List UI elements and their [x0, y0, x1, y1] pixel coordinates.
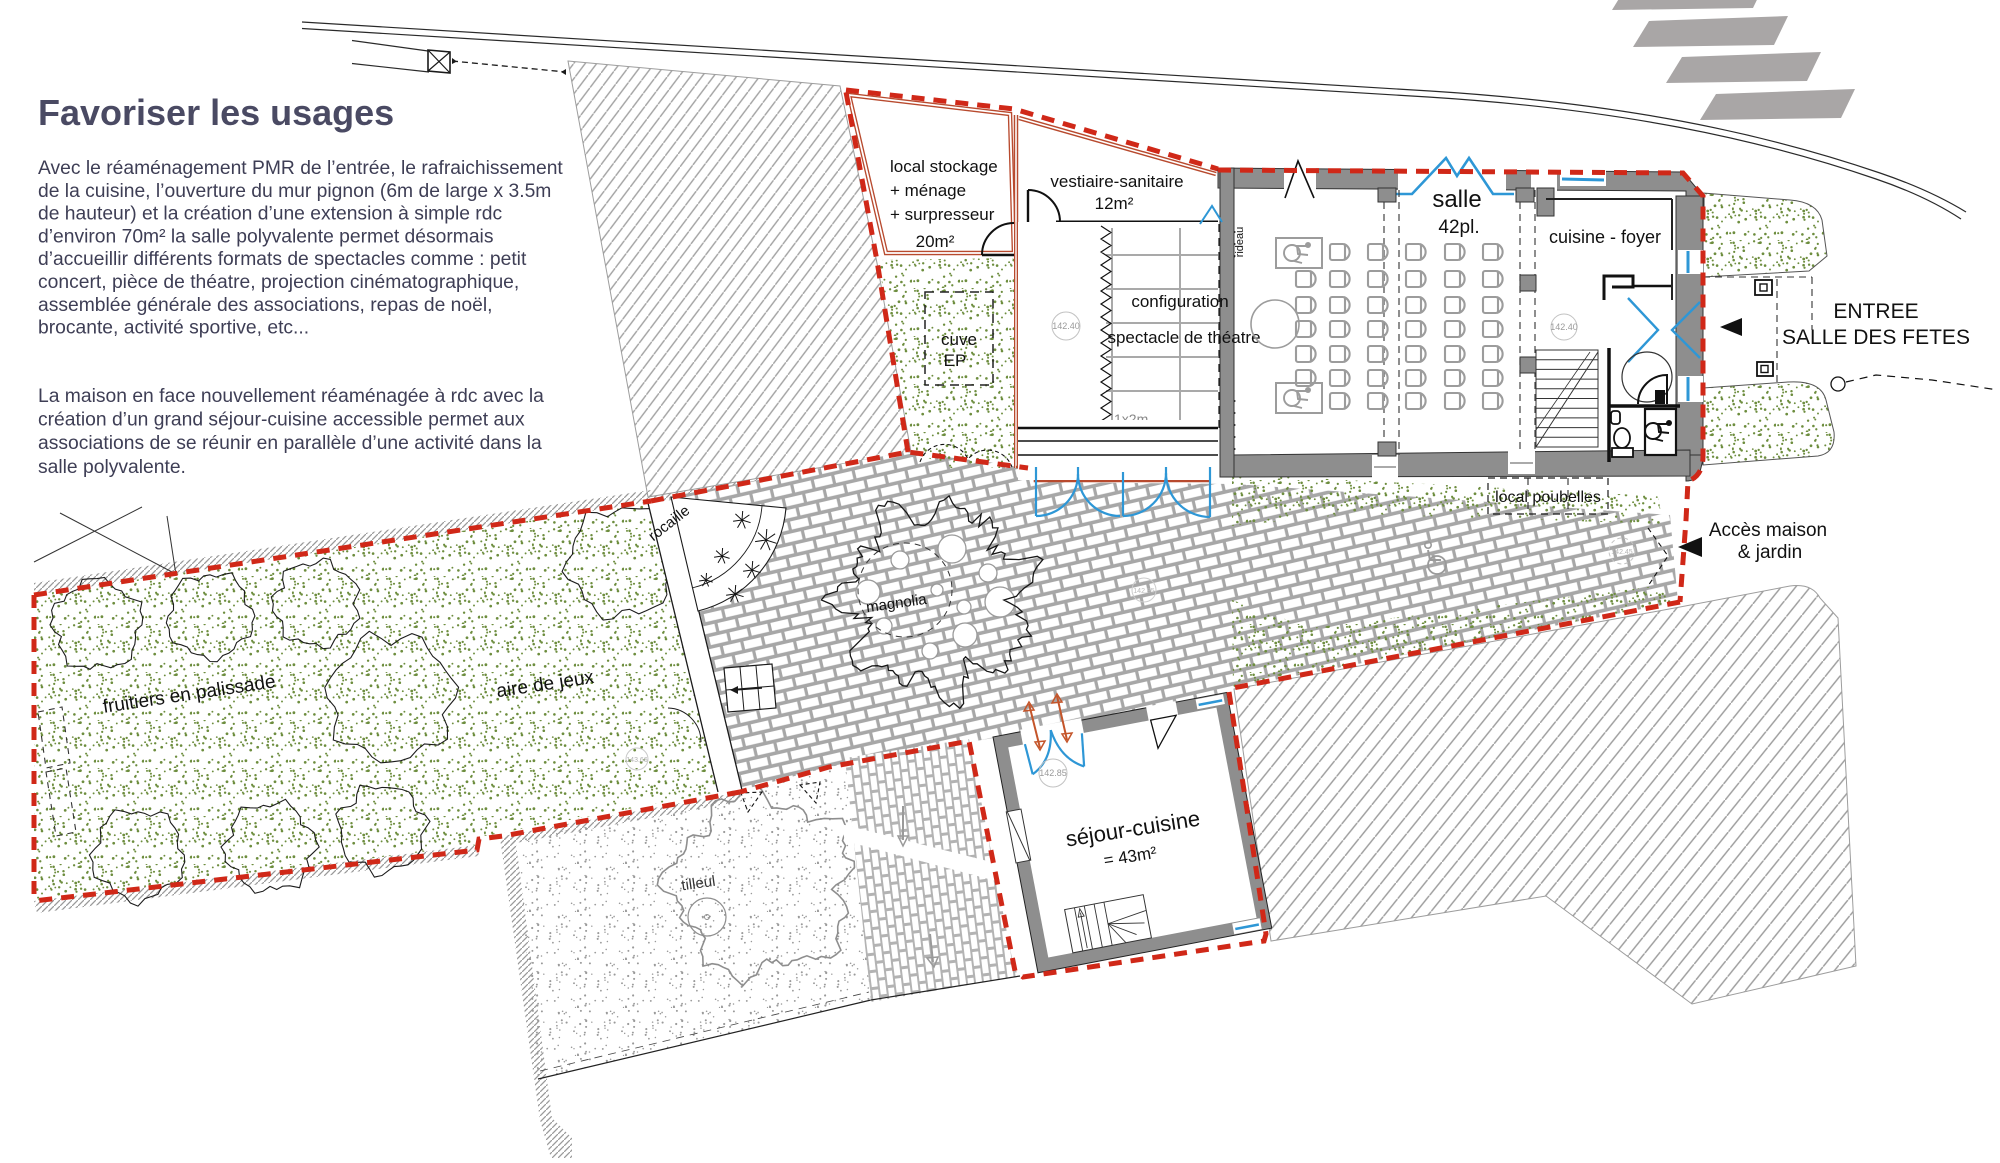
svg-text:de hauteur) et la création d’u: de hauteur) et la création d’une extensi… — [38, 204, 502, 225]
svg-text:concert, pièce de théatre, pro: concert, pièce de théatre, projection ci… — [38, 272, 519, 293]
svg-text:142.85: 142.85 — [1133, 588, 1155, 595]
svg-text:de la cuisine, l’ouverture du: de la cuisine, l’ouverture du mur pignon… — [38, 181, 551, 202]
svg-text:d’accueillir différents format: d’accueillir différents formats de spect… — [38, 249, 527, 270]
svg-text:d’environ 70m² la salle polyva: d’environ 70m² la salle polyvalente perm… — [38, 226, 493, 247]
svg-text:Accès maison: Accès maison — [1709, 520, 1827, 541]
svg-text:142.40: 142.40 — [1052, 321, 1080, 331]
svg-text:assemblée générale des associa: assemblée générale des associations, rep… — [38, 295, 492, 316]
svg-text:salle: salle — [1432, 186, 1481, 213]
svg-text:Avec le réaménagement PMR de l: Avec le réaménagement PMR de l’entrée, l… — [38, 158, 563, 179]
svg-text:SALLE DES FETES: SALLE DES FETES — [1782, 326, 1970, 349]
svg-text:142.45: 142.45 — [1611, 549, 1633, 556]
svg-text:+ ménage: + ménage — [890, 181, 966, 200]
svg-text:& jardin: & jardin — [1738, 542, 1802, 563]
svg-text:ENTREE: ENTREE — [1833, 300, 1918, 323]
svg-text:+ surpresseur: + surpresseur — [890, 205, 995, 224]
svg-text:143.66: 143.66 — [626, 757, 648, 764]
svg-text:associations de se réunir en p: associations de se réunir en parallèle d… — [38, 433, 542, 454]
svg-text:142.85: 142.85 — [1039, 768, 1067, 778]
svg-text:La maison en face nouvellement: La maison en face nouvellement réaménagé… — [38, 386, 544, 407]
svg-text:configuration: configuration — [1131, 292, 1228, 311]
svg-text:Favoriser les usages: Favoriser les usages — [38, 92, 394, 133]
svg-text:142.40: 142.40 — [1550, 322, 1578, 332]
svg-text:spectacle de théatre: spectacle de théatre — [1107, 328, 1260, 347]
svg-text:42pl.: 42pl. — [1438, 217, 1479, 238]
svg-text:cuisine - foyer: cuisine - foyer — [1549, 227, 1661, 247]
svg-text:rideau: rideau — [1234, 227, 1246, 258]
svg-text:local stockage: local stockage — [890, 157, 998, 176]
svg-text:local poubelles: local poubelles — [1495, 489, 1601, 506]
svg-text:20m²: 20m² — [916, 232, 955, 251]
svg-text:création d’un grand séjour-cui: création d’un grand séjour-cuisine acces… — [38, 410, 525, 431]
svg-text:salle polyvalente.: salle polyvalente. — [38, 457, 186, 478]
svg-text:brocante, activité sportive, e: brocante, activité sportive, etc... — [38, 318, 309, 339]
svg-text:vestiaire-sanitaire: vestiaire-sanitaire — [1050, 172, 1183, 191]
svg-text:12m²: 12m² — [1095, 194, 1134, 213]
svg-text:cuve: cuve — [941, 330, 977, 349]
svg-text:EP: EP — [944, 351, 967, 370]
